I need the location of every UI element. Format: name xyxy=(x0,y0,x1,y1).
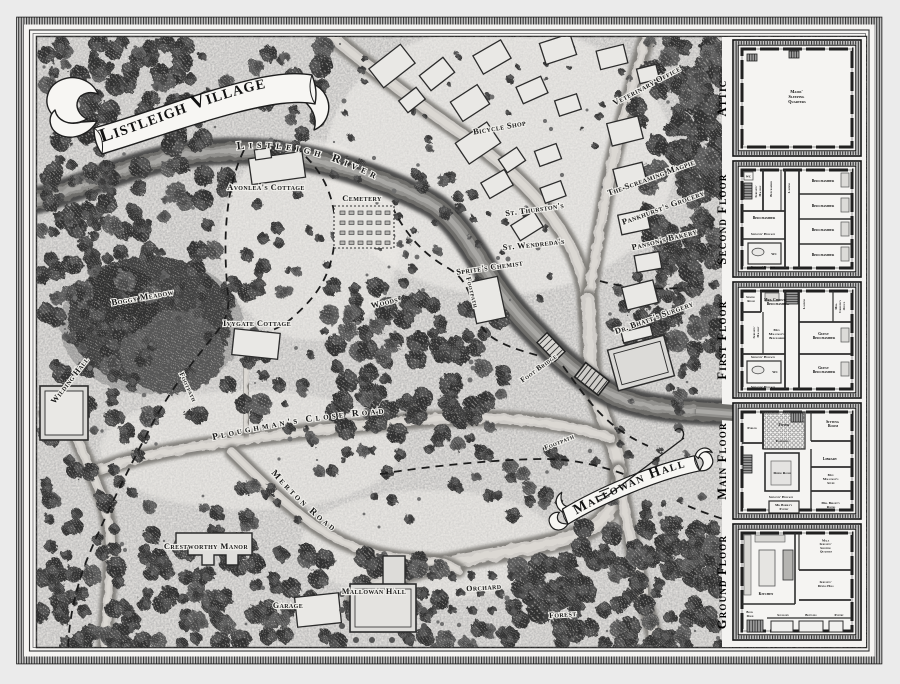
svg-text:Bedchamber: Bedchamber xyxy=(812,204,835,208)
svg-text:Bedchamber: Bedchamber xyxy=(812,228,835,232)
svg-text:Pantry: Pantry xyxy=(834,613,844,617)
svg-text:Bedchamber: Bedchamber xyxy=(769,181,773,197)
svg-text:Mallowan Hall: Mallowan Hall xyxy=(342,587,406,596)
svg-text:Servants' Hallway: Servants' Hallway xyxy=(751,355,776,359)
svg-text:Telephone: Telephone xyxy=(775,439,789,443)
svg-text:Library: Library xyxy=(823,457,838,461)
svg-text:Servants' Hallway: Servants' Hallway xyxy=(751,385,776,389)
svg-text:WC: WC xyxy=(746,175,751,179)
svg-text:Servants' Hallway: Servants' Hallway xyxy=(751,232,776,236)
svg-text:Maids' Sleeping Quarters: Maids' Sleeping Quarters xyxy=(788,89,806,104)
svg-text:Bedchamber: Bedchamber xyxy=(812,179,835,183)
svg-text:WC: WC xyxy=(772,370,778,374)
svg-text:Main Floor: Main Floor xyxy=(715,422,729,500)
svg-text:Kitchen: Kitchen xyxy=(759,592,774,596)
svg-text:Servants' Dining Hall: Servants' Dining Hall xyxy=(818,580,835,588)
svg-text:Crestworthy Manor: Crestworthy Manor xyxy=(164,541,248,551)
svg-text:Landing: Landing xyxy=(802,298,806,309)
svg-text:Forest: Forest xyxy=(549,609,577,620)
svg-text:Servants' Hallway: Servants' Hallway xyxy=(754,185,762,198)
svg-text:Back Door: Back Door xyxy=(746,610,754,618)
svg-text:Attic: Attic xyxy=(715,79,729,116)
svg-text:Servants' Hallway: Servants' Hallway xyxy=(751,265,776,269)
svg-text:Avonlea's Cottage: Avonlea's Cottage xyxy=(227,182,305,192)
svg-text:First Floor: First Floor xyxy=(715,300,729,379)
svg-text:Sitting Room: Sitting Room xyxy=(826,420,840,428)
svg-text:Bedchamber: Bedchamber xyxy=(812,253,835,257)
svg-text:Cemetery: Cemetery xyxy=(342,193,382,203)
svg-text:Servants' Hallway: Servants' Hallway xyxy=(752,326,760,339)
svg-text:Sewing Room: Sewing Room xyxy=(746,295,756,303)
svg-text:Landing: Landing xyxy=(787,182,791,193)
svg-text:Ivygate Cottage: Ivygate Cottage xyxy=(223,318,291,328)
svg-text:Garage: Garage xyxy=(273,601,303,610)
svg-text:Second Floor: Second Floor xyxy=(715,173,729,264)
svg-text:Parlor: Parlor xyxy=(747,426,757,430)
svg-text:Bottling: Bottling xyxy=(805,613,817,617)
svg-text:WC: WC xyxy=(771,252,777,256)
svg-text:Scullery: Scullery xyxy=(777,613,789,617)
svg-text:Foyer: Foyer xyxy=(779,423,791,427)
svg-text:Ground Floor: Ground Floor xyxy=(715,535,729,629)
svg-text:Dining Room: Dining Room xyxy=(774,471,791,475)
svg-text:Bedchamber: Bedchamber xyxy=(753,216,776,220)
svg-text:Servants' Hallway: Servants' Hallway xyxy=(769,495,794,499)
